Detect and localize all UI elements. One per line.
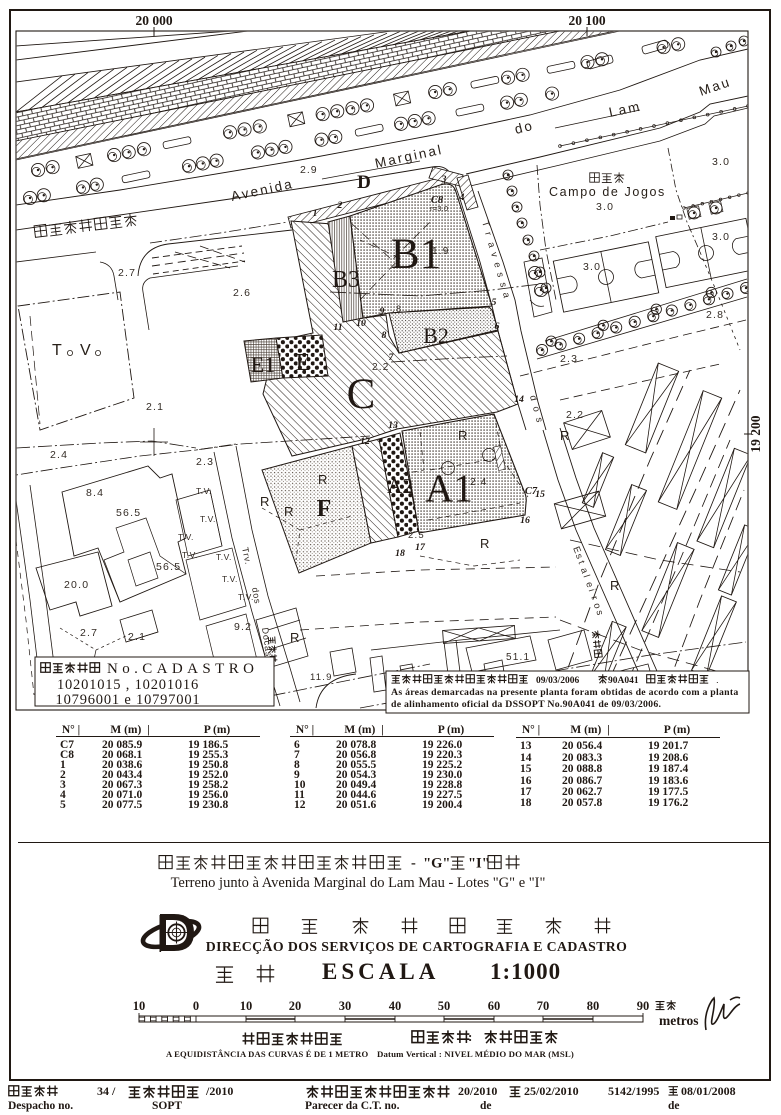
svg-text:20: 20 xyxy=(289,999,302,1013)
svg-text:10: 10 xyxy=(133,999,146,1013)
svg-text:80: 80 xyxy=(587,999,600,1013)
svg-text:08/01/2008: 08/01/2008 xyxy=(681,1084,736,1098)
svg-text:25/02/2010: 25/02/2010 xyxy=(524,1084,579,1098)
svg-text:10: 10 xyxy=(240,999,253,1013)
svg-text:40: 40 xyxy=(389,999,402,1013)
svg-text:/2010: /2010 xyxy=(205,1084,233,1098)
svg-text:90: 90 xyxy=(637,999,650,1013)
svg-text:Datum Vertical : NIVEL MÉDIO D: Datum Vertical : NIVEL MÉDIO DO MAR (MSL… xyxy=(377,1049,574,1059)
svg-text:70: 70 xyxy=(537,999,550,1013)
svg-text:metros: metros xyxy=(659,1013,699,1028)
svg-text:5142/1995: 5142/1995 xyxy=(608,1084,659,1098)
svg-text::: : xyxy=(468,1029,472,1044)
svg-text:SOPT: SOPT xyxy=(152,1100,182,1112)
svg-text:de: de xyxy=(480,1100,492,1112)
svg-text:de: de xyxy=(668,1100,680,1112)
svg-text:50: 50 xyxy=(438,999,451,1013)
svg-text:A EQUIDISTÂNCIA DAS CURVAS É D: A EQUIDISTÂNCIA DAS CURVAS É DE 1 METRO xyxy=(166,1049,369,1059)
svg-text:60: 60 xyxy=(488,999,501,1013)
svg-text:Parecer da C.T. no.: Parecer da C.T. no. xyxy=(305,1100,400,1112)
svg-text:34 /: 34 / xyxy=(97,1084,116,1098)
svg-text:20/2010: 20/2010 xyxy=(458,1084,497,1098)
svg-text:Despacho no.: Despacho no. xyxy=(8,1100,73,1112)
svg-text:30: 30 xyxy=(339,999,352,1013)
svg-text:0: 0 xyxy=(193,999,199,1013)
